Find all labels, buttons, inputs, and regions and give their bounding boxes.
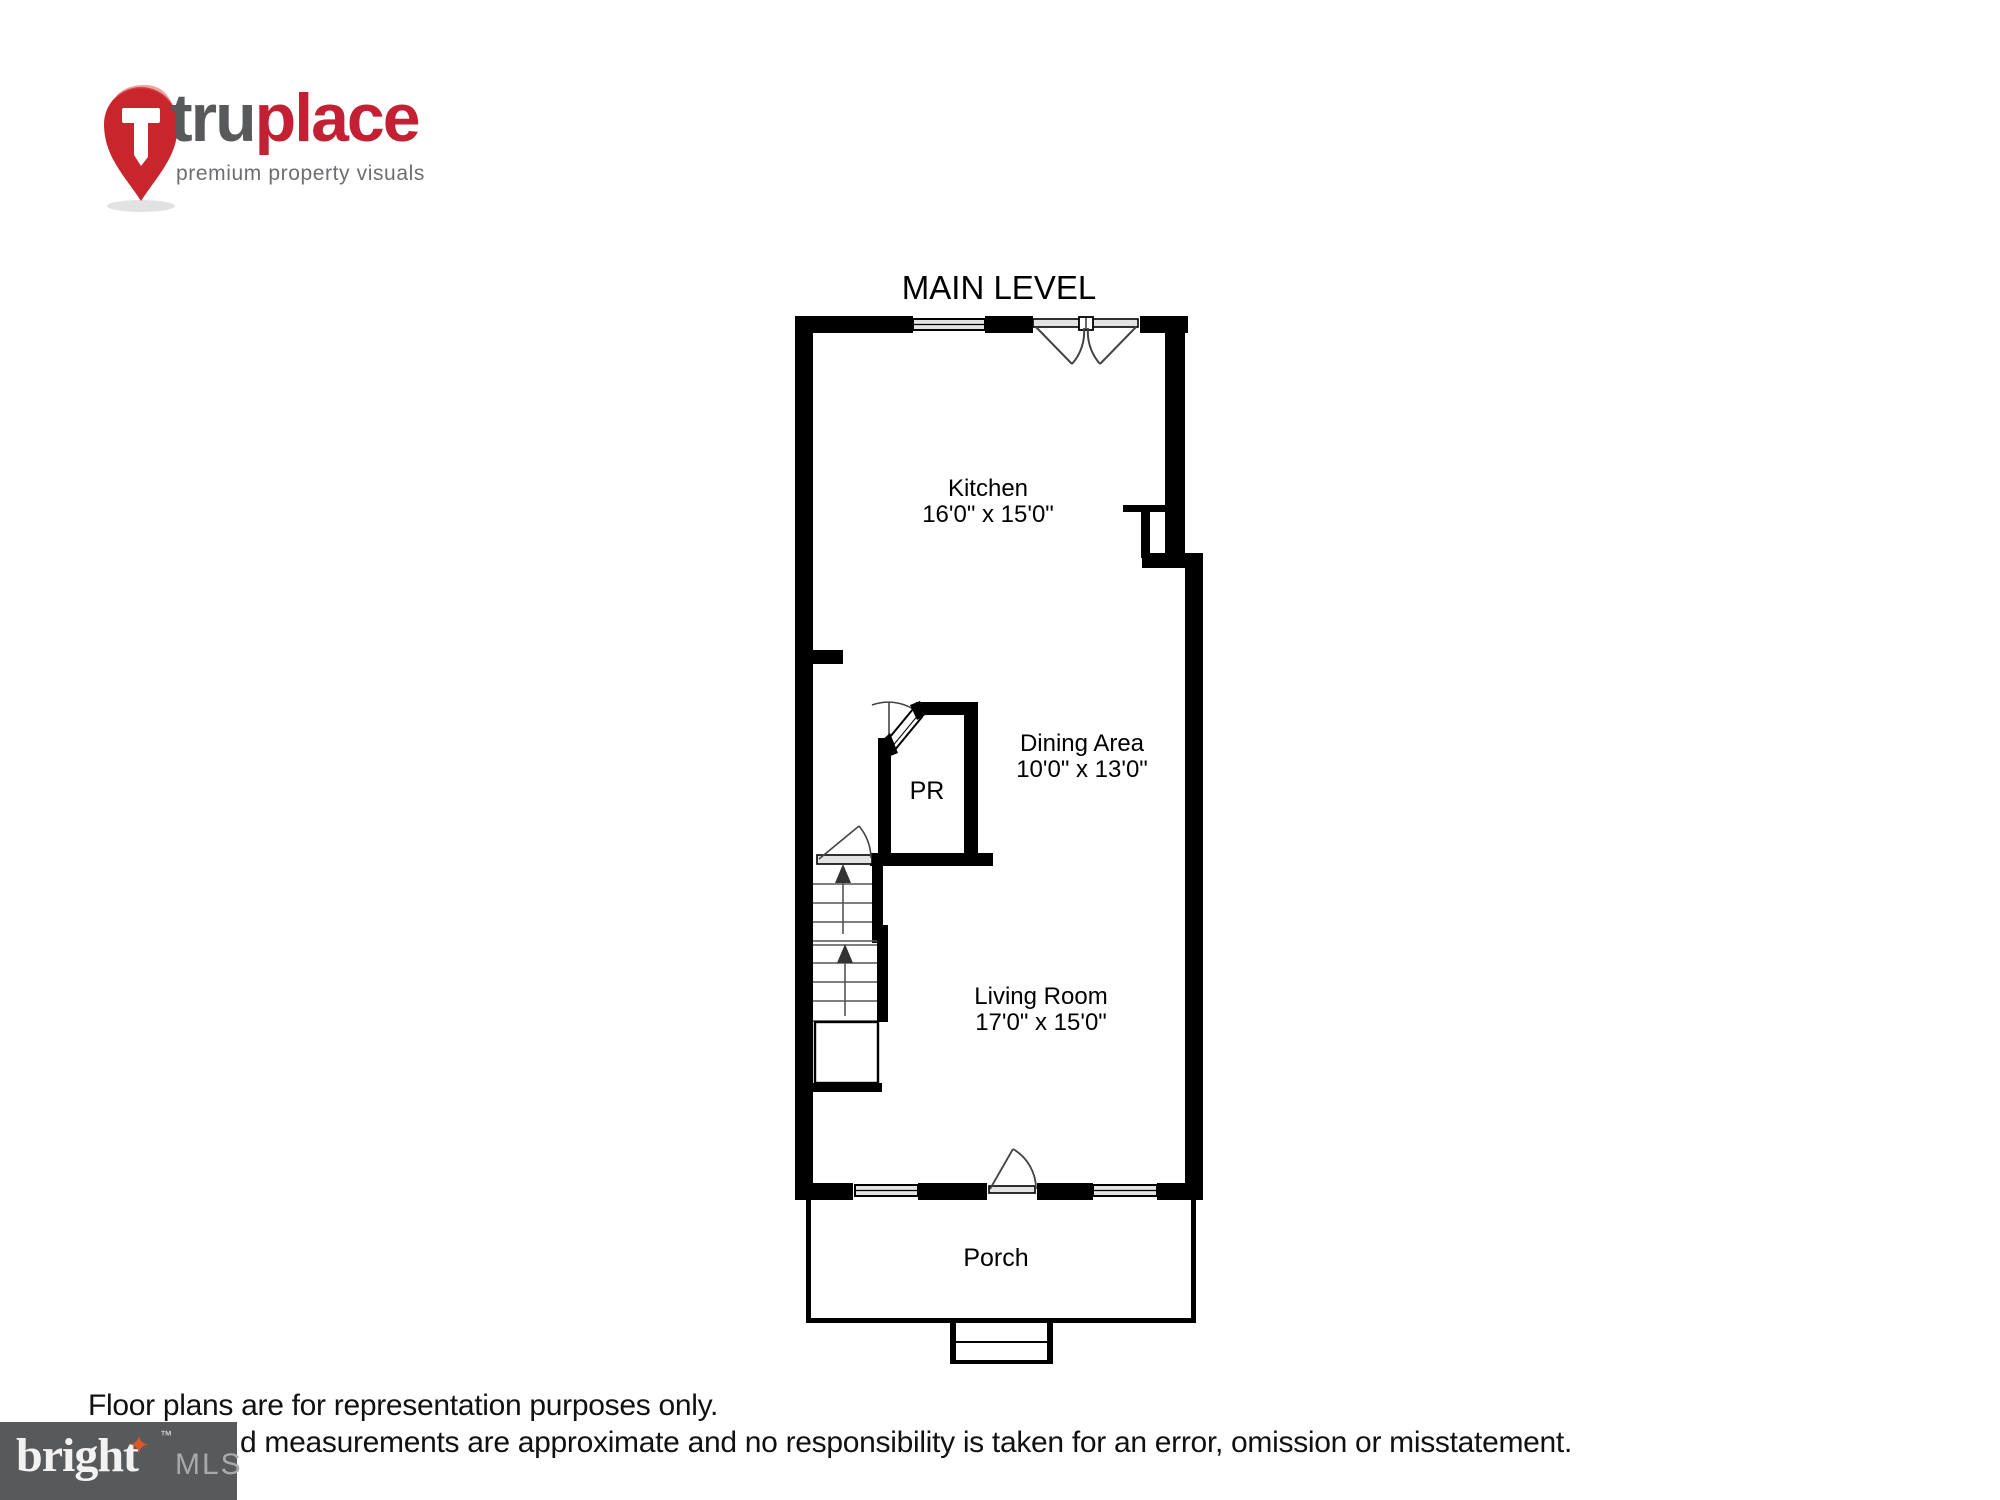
windows [855, 319, 1157, 1196]
disclaimer-line-1: Floor plans are for representation purpo… [88, 1389, 718, 1423]
exterior-walls [795, 316, 1203, 1200]
door-swing-arc [859, 826, 871, 858]
bright-trademark: ™ [160, 1428, 172, 1442]
interior-walls [812, 505, 1167, 1092]
porch-outline [806, 1200, 1196, 1323]
bright-mls-logo: bright ✦ ™ MLS [0, 1422, 237, 1500]
stair-landing [815, 1022, 878, 1083]
door-swing-arc [1072, 328, 1084, 364]
entry-door [989, 1149, 1036, 1193]
stairs [813, 864, 878, 1083]
window-bottom-left [855, 1185, 918, 1196]
disclaimer-line-2: d measurements are approximate and no re… [240, 1426, 1572, 1460]
window-bottom-right [1093, 1185, 1157, 1196]
door-swing-arc [1013, 1149, 1036, 1189]
floor-plan [0, 0, 2000, 1500]
door-leaf [1036, 327, 1072, 364]
window-top [913, 319, 985, 330]
bright-star-icon: ✦ [128, 1430, 150, 1461]
bright-wordmark: bright [16, 1428, 138, 1483]
stair-door [817, 826, 872, 864]
french-doors [1033, 317, 1138, 364]
bright-mls-suffix: MLS [175, 1448, 243, 1482]
door-leaf [990, 1149, 1013, 1189]
door-swing-arc [1088, 328, 1100, 364]
porch-steps [950, 1322, 1053, 1364]
door-leaf [1100, 327, 1136, 364]
